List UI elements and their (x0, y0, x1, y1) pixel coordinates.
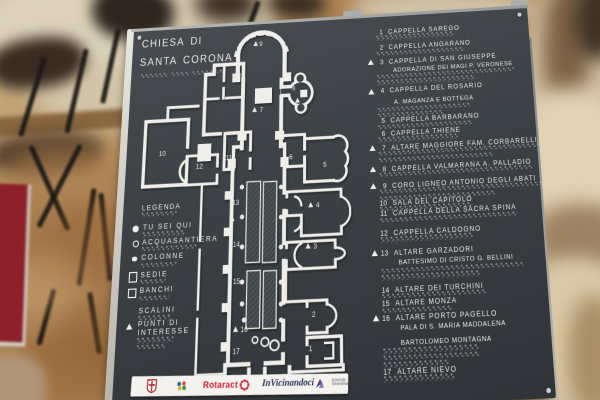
svg-text:14: 14 (233, 242, 241, 250)
svg-text:11: 11 (226, 155, 233, 162)
svg-text:3: 3 (313, 244, 317, 251)
svg-text:13: 13 (232, 200, 240, 207)
svg-text:15: 15 (233, 279, 241, 287)
svg-text:9: 9 (259, 42, 262, 48)
svg-text:17: 17 (232, 349, 239, 357)
svg-text:16: 16 (240, 327, 248, 335)
svg-text:2: 2 (312, 312, 316, 320)
svg-text:12: 12 (196, 164, 203, 171)
svg-text:4: 4 (316, 203, 320, 210)
svg-text:7: 7 (260, 108, 263, 115)
svg-text:5: 5 (323, 162, 327, 169)
svg-text:8: 8 (292, 86, 295, 93)
svg-text:6: 6 (289, 155, 293, 162)
svg-text:10: 10 (159, 151, 167, 158)
svg-text:1: 1 (309, 346, 313, 354)
